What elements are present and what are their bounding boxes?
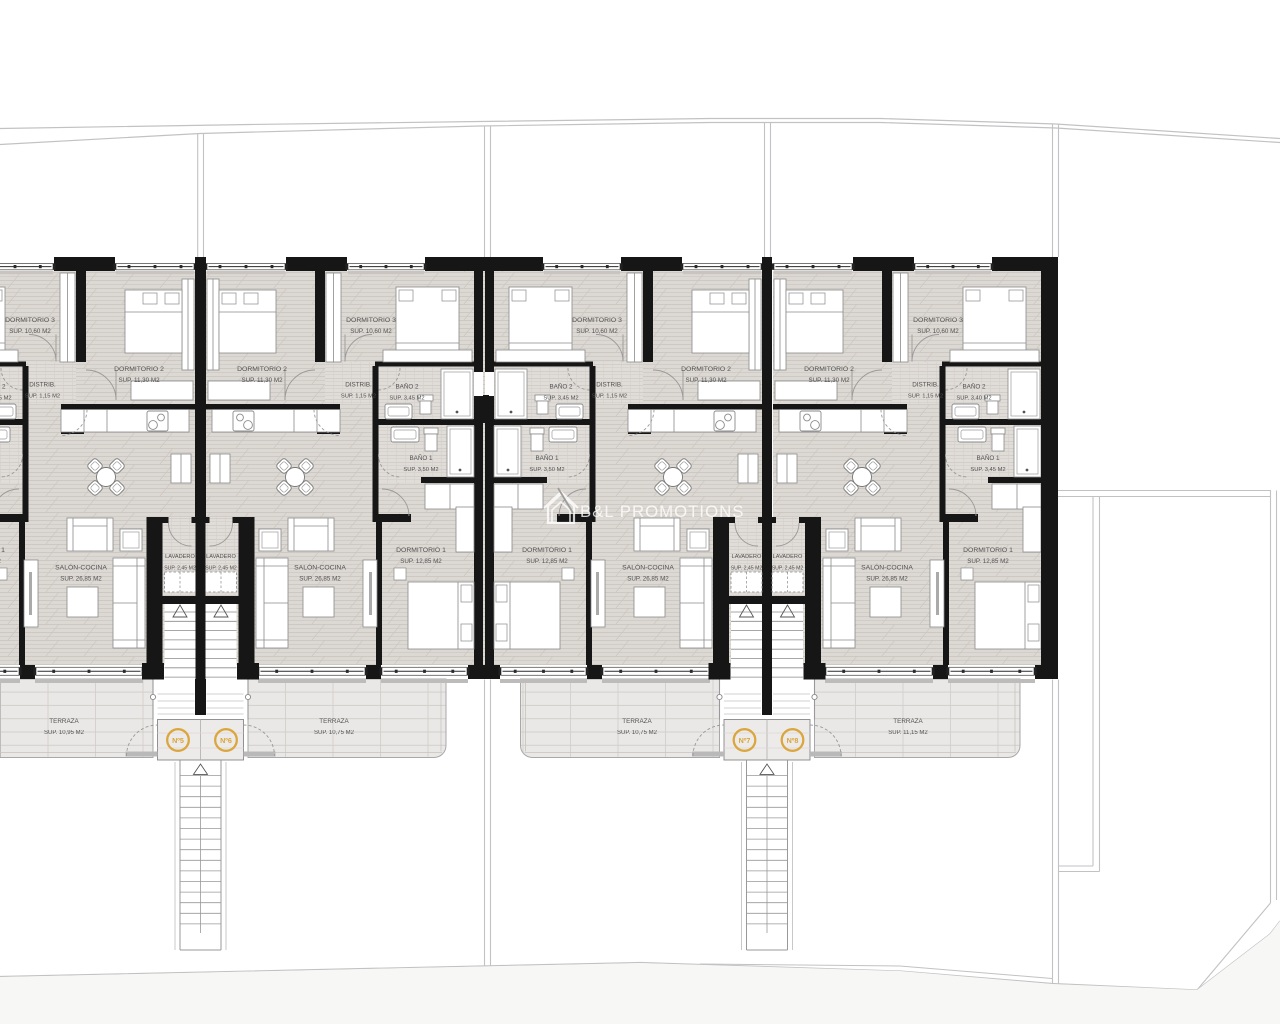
svg-text:DORMITORIO 1: DORMITORIO 1 (0, 547, 5, 554)
svg-text:SUP. 3,45 M2: SUP. 3,45 M2 (0, 396, 12, 402)
svg-text:SUP. 11,30 M2: SUP. 11,30 M2 (808, 377, 850, 384)
svg-text:SUP. 2,45 M2: SUP. 2,45 M2 (772, 566, 804, 572)
svg-text:BAÑO 2: BAÑO 2 (549, 382, 573, 391)
svg-text:DORMITORIO 1: DORMITORIO 1 (963, 547, 1013, 554)
svg-text:SUP. 12,85 M2: SUP. 12,85 M2 (526, 558, 568, 565)
svg-text:SUP. 12,85 M2: SUP. 12,85 M2 (400, 558, 442, 565)
svg-text:DORMITORIO 3: DORMITORIO 3 (572, 317, 622, 324)
svg-text:LAVADERO: LAVADERO (206, 554, 236, 560)
svg-text:B&L PROMOTIONS: B&L PROMOTIONS (580, 502, 744, 521)
svg-text:SUP. 10,60 M2: SUP. 10,60 M2 (9, 328, 51, 335)
svg-text:SUP. 12,85 M2: SUP. 12,85 M2 (967, 558, 1009, 565)
svg-text:SUP. 26,85 M2: SUP. 26,85 M2 (866, 576, 908, 583)
svg-text:SUP. 1,15 M2: SUP. 1,15 M2 (25, 394, 60, 400)
svg-text:SUP. 2,45 M2: SUP. 2,45 M2 (731, 566, 763, 572)
svg-text:SUP. 26,85 M2: SUP. 26,85 M2 (627, 576, 669, 583)
svg-text:DORMITORIO 3: DORMITORIO 3 (5, 317, 55, 324)
svg-text:SUP. 10,60 M2: SUP. 10,60 M2 (917, 328, 959, 335)
svg-text:SUP. 10,75 M2: SUP. 10,75 M2 (314, 730, 355, 736)
svg-text:SUP. 1,15 M2: SUP. 1,15 M2 (592, 394, 627, 400)
svg-text:SUP. 26,85 M2: SUP. 26,85 M2 (299, 576, 341, 583)
svg-text:DORMITORIO 1: DORMITORIO 1 (522, 547, 572, 554)
svg-text:TERRAZA: TERRAZA (893, 718, 923, 725)
svg-text:SUP. 3,40 M2: SUP. 3,40 M2 (956, 396, 991, 402)
svg-text:BAÑO 1: BAÑO 1 (976, 453, 1000, 462)
svg-text:SUP. 2,45 M2: SUP. 2,45 M2 (205, 566, 237, 572)
svg-text:DORMITORIO 1: DORMITORIO 1 (396, 547, 446, 554)
svg-text:DORMITORIO 2: DORMITORIO 2 (114, 366, 164, 373)
svg-text:Nº6: Nº6 (220, 736, 232, 745)
svg-text:Nº8: Nº8 (787, 736, 799, 745)
svg-text:BAÑO 2: BAÑO 2 (962, 382, 986, 391)
svg-text:TERRAZA: TERRAZA (49, 718, 79, 725)
svg-text:LAVADERO: LAVADERO (773, 554, 803, 560)
svg-text:SALÓN-COCINA: SALÓN-COCINA (622, 563, 674, 572)
svg-text:BAÑO 1: BAÑO 1 (535, 453, 559, 462)
svg-text:SUP. 10,60 M2: SUP. 10,60 M2 (350, 328, 392, 335)
svg-text:BAÑO 2: BAÑO 2 (395, 382, 419, 391)
svg-text:SUP. 11,30 M2: SUP. 11,30 M2 (685, 377, 727, 384)
svg-text:TERRAZA: TERRAZA (319, 718, 349, 725)
svg-text:DORMITORIO 2: DORMITORIO 2 (804, 366, 854, 373)
svg-text:SALÓN-COCINA: SALÓN-COCINA (294, 563, 346, 572)
svg-text:SUP. 26,85 M2: SUP. 26,85 M2 (60, 576, 102, 583)
svg-text:SUP. 2,45 M2: SUP. 2,45 M2 (164, 566, 196, 572)
svg-text:SALÓN-COCINA: SALÓN-COCINA (861, 563, 913, 572)
svg-text:DORMITORIO 3: DORMITORIO 3 (913, 317, 963, 324)
svg-text:SUP. 10,60 M2: SUP. 10,60 M2 (576, 328, 618, 335)
svg-text:DISTRIB.: DISTRIB. (29, 382, 56, 389)
svg-text:Nº5: Nº5 (172, 736, 184, 745)
svg-text:DISTRIB.: DISTRIB. (345, 382, 372, 389)
svg-text:SUP. 3,45 M2: SUP. 3,45 M2 (970, 467, 1005, 473)
svg-text:SUP. 1,15 M2: SUP. 1,15 M2 (908, 394, 943, 400)
svg-text:DORMITORIO 3: DORMITORIO 3 (346, 317, 396, 324)
svg-text:SUP. 3,45 M2: SUP. 3,45 M2 (389, 396, 424, 402)
svg-text:DORMITORIO 2: DORMITORIO 2 (681, 366, 731, 373)
svg-text:SUP. 11,30 M2: SUP. 11,30 M2 (241, 377, 283, 384)
svg-text:SUP. 11,15 M2: SUP. 11,15 M2 (888, 730, 928, 736)
svg-text:SUP. 3,45 M2: SUP. 3,45 M2 (543, 396, 578, 402)
svg-text:LAVADERO: LAVADERO (165, 554, 195, 560)
svg-text:DISTRIB.: DISTRIB. (596, 382, 623, 389)
svg-text:Nº7: Nº7 (739, 736, 751, 745)
svg-text:SUP. 11,30 M2: SUP. 11,30 M2 (118, 377, 160, 384)
svg-text:SUP. 3,50 M2: SUP. 3,50 M2 (403, 467, 438, 473)
svg-text:SUP. 3,50 M2: SUP. 3,50 M2 (529, 467, 564, 473)
svg-text:SALÓN-COCINA: SALÓN-COCINA (55, 563, 107, 572)
svg-text:DISTRIB.: DISTRIB. (912, 382, 939, 389)
svg-text:SUP. 1,15 M2: SUP. 1,15 M2 (341, 394, 376, 400)
svg-text:TERRAZA: TERRAZA (622, 718, 652, 725)
svg-text:LAVADERO: LAVADERO (732, 554, 762, 560)
svg-text:SUP. 10,75 M2: SUP. 10,75 M2 (617, 730, 658, 736)
svg-text:SUP. 10,95 M2: SUP. 10,95 M2 (44, 730, 85, 736)
svg-text:BAÑO 2: BAÑO 2 (0, 382, 6, 391)
svg-text:DORMITORIO 2: DORMITORIO 2 (237, 366, 287, 373)
svg-text:BAÑO 1: BAÑO 1 (409, 453, 433, 462)
